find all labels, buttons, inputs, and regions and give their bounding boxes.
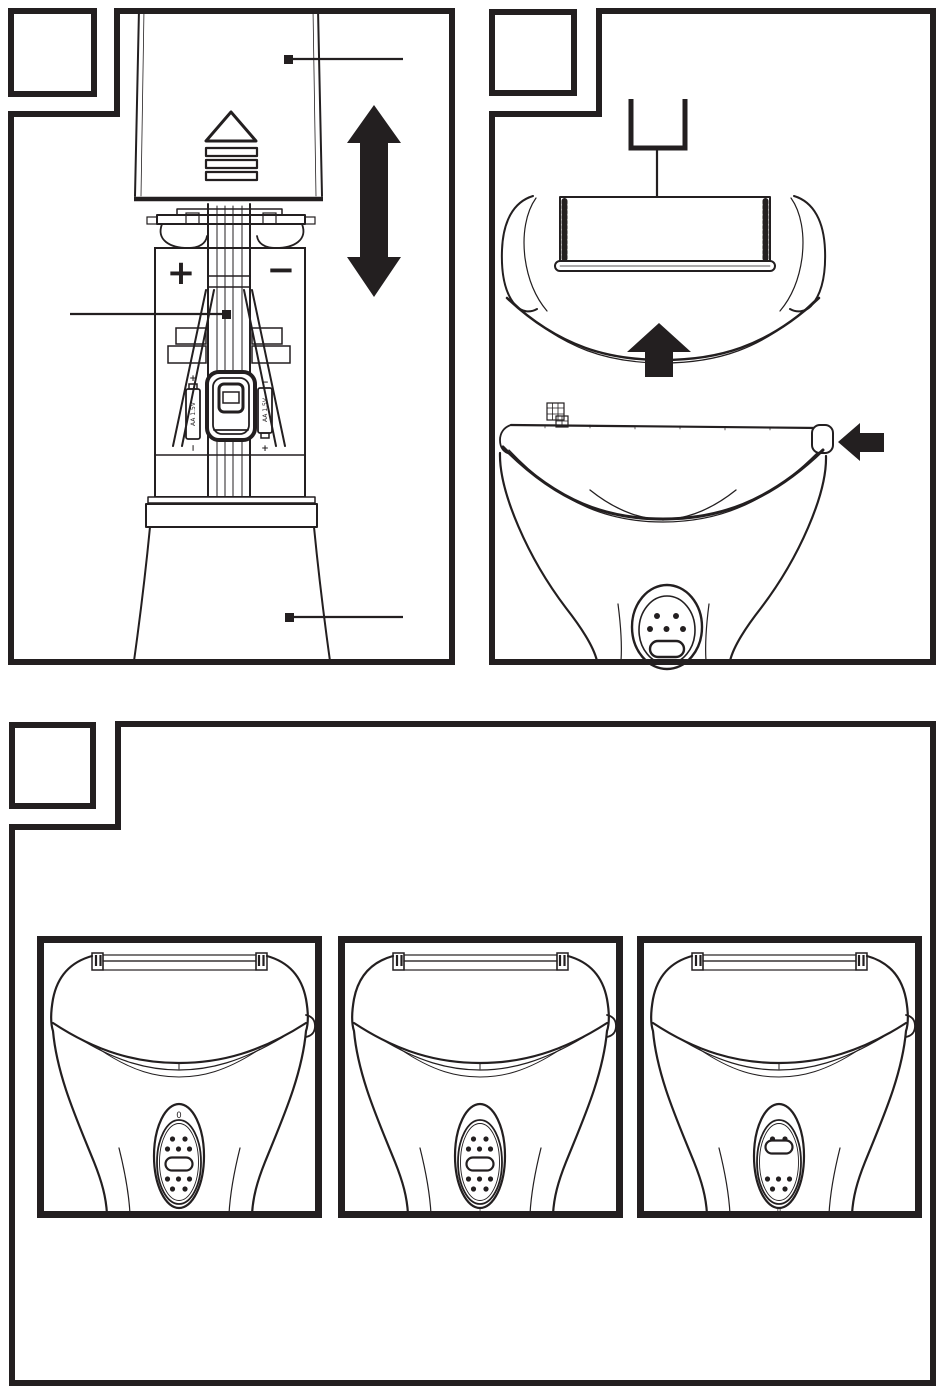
battery-left-terminal-bottom: − bbox=[189, 444, 199, 452]
switch-slider bbox=[766, 1141, 793, 1154]
battery-cover bbox=[134, 9, 323, 199]
switch-slider bbox=[166, 1158, 193, 1171]
polarity-minus: − bbox=[267, 250, 296, 290]
device-front-view: 0 bbox=[51, 953, 315, 1214]
device-front-view: II bbox=[651, 953, 915, 1216]
figure3-border bbox=[12, 724, 933, 1383]
callout-drive-shaft bbox=[70, 310, 231, 319]
switch-position-view-1: I bbox=[342, 940, 620, 1217]
battery-right-label: AA 1.5V bbox=[262, 397, 269, 422]
device-front-view: I bbox=[352, 953, 616, 1216]
power-switch: I bbox=[455, 1104, 505, 1216]
device-body bbox=[500, 403, 833, 669]
switch-slider bbox=[467, 1158, 494, 1171]
battery-right-terminal-top: − bbox=[261, 378, 269, 388]
power-switch bbox=[632, 585, 702, 669]
head-mount-assembly: + − AA 1.5V + − AA 1.5V − + bbox=[147, 204, 315, 497]
move-up-down-arrow-icon bbox=[347, 105, 401, 297]
battery-left-label: AA 1.5V bbox=[190, 401, 197, 426]
release-latch bbox=[207, 372, 255, 440]
handle-body bbox=[134, 497, 330, 661]
drive-screw-detail bbox=[547, 403, 568, 427]
figure3-label-box bbox=[12, 725, 93, 806]
battery-right-terminal-bottom: + bbox=[261, 444, 269, 454]
battery-left-terminal-top: + bbox=[189, 374, 197, 384]
callout-battery-cover bbox=[284, 55, 403, 64]
switch-position-label: 0 bbox=[176, 1111, 181, 1121]
grip-triangle-icon bbox=[206, 112, 257, 180]
figure2-head-panel bbox=[475, 0, 950, 700]
power-switch: 0 bbox=[154, 1104, 204, 1208]
figure1-label-box bbox=[11, 11, 94, 94]
power-switch: II bbox=[754, 1104, 804, 1216]
instruction-figures-page: + − AA 1.5V + − AA 1.5V − + bbox=[0, 0, 950, 1399]
switch-position-view-2: II bbox=[641, 940, 919, 1217]
figure2-label-box bbox=[492, 12, 574, 93]
figure1-battery-panel: + − AA 1.5V + − AA 1.5V − + bbox=[0, 0, 475, 700]
polarity-plus: + bbox=[167, 253, 196, 293]
switch-position-view-0: 0 bbox=[41, 940, 319, 1215]
attach-arrow-up-icon bbox=[627, 323, 691, 377]
release-arrow-left-icon bbox=[838, 423, 884, 461]
switch-slider bbox=[650, 641, 684, 657]
figure3-switch-panel: 0 bbox=[0, 720, 950, 1399]
